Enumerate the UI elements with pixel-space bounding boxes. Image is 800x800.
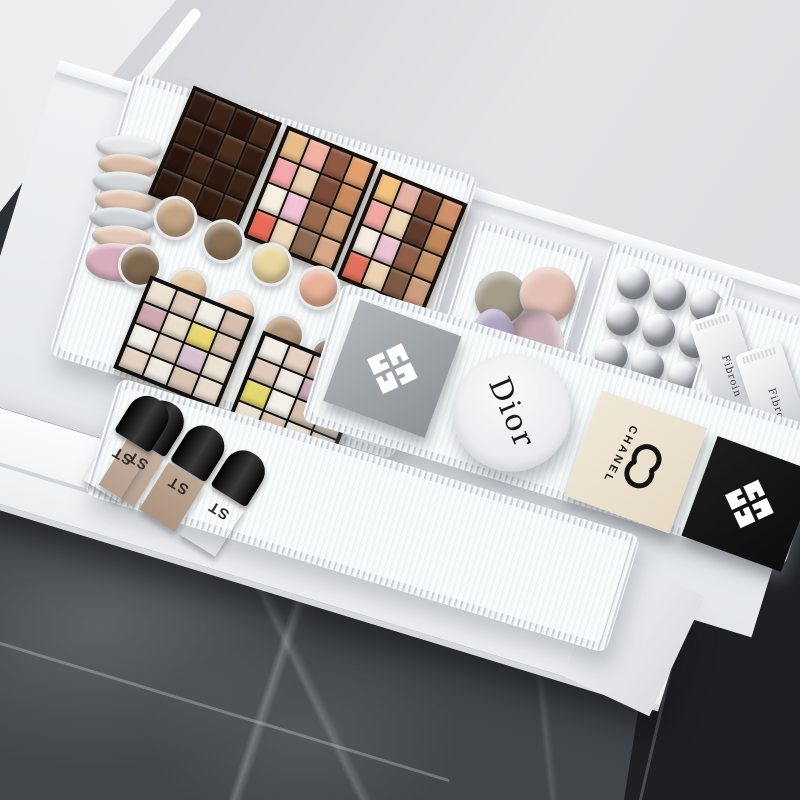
- st-label: ST: [110, 443, 137, 469]
- givenchy-compact-gray: [323, 299, 461, 437]
- st-label: ST: [206, 498, 233, 524]
- st-label: ST: [165, 473, 192, 499]
- product-photo: Fibroin Fibroin: [0, 0, 800, 800]
- dior-powder-round: Dior: [438, 339, 585, 486]
- swatch: [602, 299, 643, 340]
- givenchy-logo-icon: [362, 338, 423, 399]
- swatch: [613, 262, 654, 303]
- givenchy-compact-black: [681, 436, 800, 572]
- swatch: [194, 212, 253, 271]
- swatch: [638, 310, 679, 351]
- swatch: [649, 273, 690, 314]
- chanel-compact: CHANEL: [564, 390, 708, 534]
- givenchy-logo-icon: [720, 475, 778, 533]
- dior-label: Dior: [481, 372, 542, 454]
